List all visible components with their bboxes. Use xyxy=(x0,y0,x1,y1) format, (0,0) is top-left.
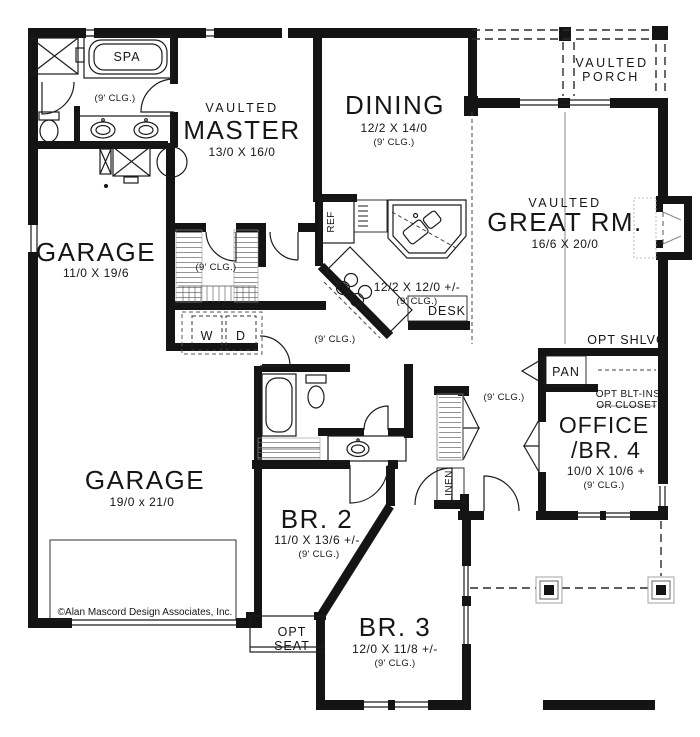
closet-ceiling-label: (9' CLG.) xyxy=(196,262,237,273)
master-room-label: MASTER xyxy=(183,115,300,145)
kitchen-dims-label: 12/2 X 12/0 +/- xyxy=(374,280,461,294)
office-ceiling-label: (9' CLG.) xyxy=(584,480,625,491)
shower xyxy=(31,38,84,74)
copyright-label: ©Alan Mascord Design Associates, Inc. xyxy=(58,607,233,618)
hall-closet-bifold-doors xyxy=(463,396,479,460)
toilet xyxy=(39,112,59,142)
opt-seat-label-line2: SEAT xyxy=(274,639,310,653)
washer-label: W xyxy=(201,329,214,343)
office-french-doors xyxy=(524,420,539,472)
br2-dims-label: 11/0 X 13/6 +/- xyxy=(274,533,360,547)
br2-ceiling-label: (9' CLG.) xyxy=(299,549,340,560)
great-room-label: GREAT RM. xyxy=(487,207,643,237)
br3-dims-label: 12/0 X 11/8 +/- xyxy=(352,642,438,656)
br3-ceiling-label: (9' CLG.) xyxy=(375,658,416,669)
master-hall-door xyxy=(270,232,298,260)
porch-label-line1: VAULTED xyxy=(575,56,648,70)
garage-lower-label: GARAGE xyxy=(85,465,205,495)
dining-ceiling-label: (9' CLG.) xyxy=(374,137,415,148)
br2-door xyxy=(350,465,388,503)
floor-plan: SPA (9' CLG.) VAULTED MASTER 13/0 X 16/0… xyxy=(0,0,700,737)
dryer-label: D xyxy=(236,329,246,343)
pantry-label: PAN xyxy=(552,365,580,379)
opt-builtins-label-line1: OPT BLT-INS xyxy=(596,389,661,400)
br2-label: BR. 2 xyxy=(281,504,354,534)
bathtub xyxy=(262,374,296,436)
vanity-sink-2 xyxy=(328,436,406,461)
garage-upper-dims-label: 11/0 X 19/6 xyxy=(63,266,129,280)
br3-label: BR. 3 xyxy=(359,612,432,642)
front-door xyxy=(484,476,519,511)
porch-column-left xyxy=(536,577,562,603)
bath2-door xyxy=(364,406,388,430)
office-dims-label: 10/0 X 10/6 + xyxy=(567,464,645,478)
kitchen-island xyxy=(388,200,466,258)
porch-label-line2: PORCH xyxy=(582,70,640,84)
dining-room-label: DINING xyxy=(345,90,445,120)
garage-entry-door xyxy=(260,336,290,366)
garage-lower-dims-label: 19/0 x 21/0 xyxy=(110,495,175,509)
porch-column-right xyxy=(648,577,674,603)
hall-closet-shelving xyxy=(437,394,463,460)
linen-label: LINEN xyxy=(444,470,455,501)
opt-shelving-label: OPT SHLVG xyxy=(587,333,666,347)
opt-builtins-label-line2: OR CLOSET xyxy=(596,400,657,411)
porch-roof-edge-right xyxy=(656,44,665,94)
closet-door xyxy=(206,232,236,261)
office-label-line1: OFFICE xyxy=(559,412,649,438)
master-bath-ceiling-label: (9' CLG.) xyxy=(95,93,136,104)
spa-label: SPA xyxy=(113,50,140,64)
porch-post-lines xyxy=(563,42,574,96)
master-vaulted-label: VAULTED xyxy=(205,101,278,115)
entry-ceiling-label: (9' CLG.) xyxy=(484,392,525,403)
dining-dims-label: 12/2 X 14/0 xyxy=(361,121,428,135)
toilet-2 xyxy=(306,375,326,408)
br2-closet-shelving xyxy=(258,438,320,459)
wc-door xyxy=(42,82,74,114)
floor-plan-drawing: SPA (9' CLG.) VAULTED MASTER 13/0 X 16/0… xyxy=(0,0,700,737)
island-sink xyxy=(398,203,443,245)
vanity-sinks xyxy=(78,116,172,144)
office-label-line2: /BR. 4 xyxy=(571,437,641,463)
kitchen-counter xyxy=(354,200,387,232)
hall-ceiling-label: (9' CLG.) xyxy=(315,334,356,345)
opt-seat-label-line1: OPT xyxy=(278,625,307,639)
desk-label: DESK xyxy=(428,304,466,318)
master-dims-label: 13/0 X 16/0 xyxy=(209,145,276,159)
garage-upper-label: GARAGE xyxy=(36,237,156,267)
great-room-dims-label: 16/6 X 20/0 xyxy=(532,237,599,251)
master-bath-door xyxy=(141,79,174,112)
fridge-label: REF xyxy=(326,211,337,232)
